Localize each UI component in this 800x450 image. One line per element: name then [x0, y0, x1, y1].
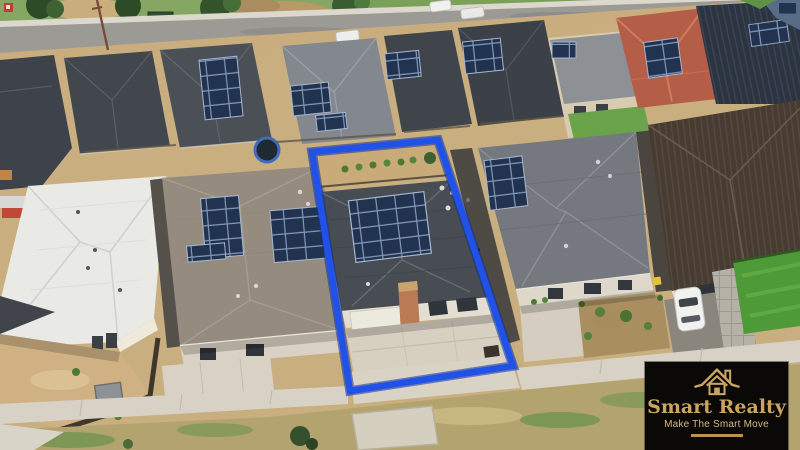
solar-array [552, 42, 576, 58]
solar-array [316, 112, 348, 131]
crossover-pad [352, 406, 438, 450]
solar-array [779, 3, 796, 14]
mailbox [652, 276, 661, 285]
white-car [673, 286, 706, 331]
logo-tagline: Make The Smart Move [664, 419, 769, 431]
logo-underline [691, 434, 743, 437]
aerial-listing-photo: Smart Realty Make The Smart Move [0, 0, 800, 450]
solar-array [749, 19, 790, 46]
solar-array [484, 156, 528, 210]
solar-array [385, 50, 422, 79]
agency-logo: Smart Realty Make The Smart Move [645, 362, 788, 450]
solar-array [644, 38, 683, 78]
subject-solar-array [348, 192, 431, 263]
white-roof-house [0, 170, 166, 436]
solar-array [290, 82, 331, 116]
solar-array [199, 56, 243, 120]
solar-array [187, 243, 226, 262]
solar-array [462, 38, 503, 74]
bin [483, 345, 499, 358]
logo-title: Smart Realty [647, 397, 786, 418]
logo-house-icon [694, 366, 740, 396]
